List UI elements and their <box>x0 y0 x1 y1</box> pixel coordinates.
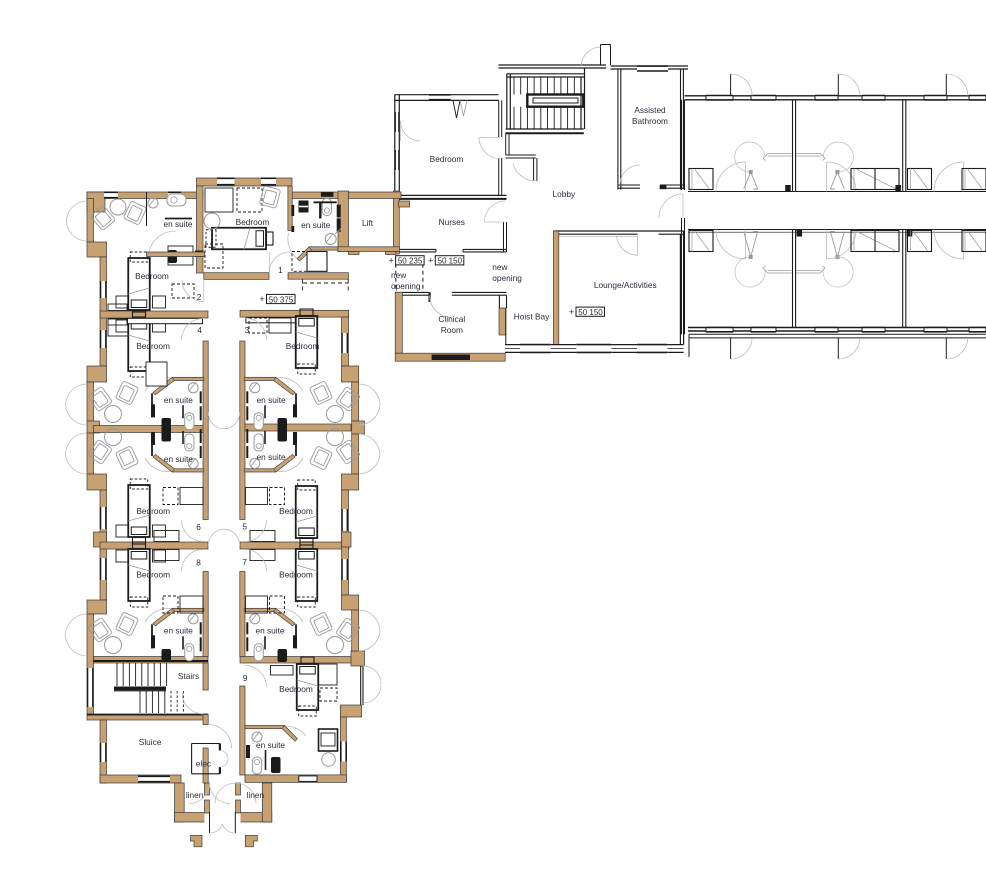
svg-text:2: 2 <box>197 292 202 302</box>
svg-text:Lift: Lift <box>362 218 374 228</box>
svg-text:Assisted: Assisted <box>634 105 666 115</box>
svg-text:en suite: en suite <box>255 626 284 636</box>
svg-text:50 235: 50 235 <box>398 257 423 266</box>
svg-text:en suite: en suite <box>257 395 286 405</box>
svg-text:linen: linen <box>186 790 204 800</box>
svg-text:en suite: en suite <box>301 220 330 230</box>
svg-text:elec: elec <box>196 759 211 769</box>
svg-text:7: 7 <box>242 557 247 567</box>
svg-text:en suite: en suite <box>164 395 193 405</box>
svg-text:opening: opening <box>391 281 421 291</box>
svg-text:new: new <box>492 262 508 272</box>
svg-text:Bedroom: Bedroom <box>135 271 169 281</box>
svg-text:1: 1 <box>278 265 283 275</box>
svg-text:50 150: 50 150 <box>438 257 463 266</box>
svg-text:Nurses: Nurses <box>439 217 465 227</box>
svg-text:+: + <box>428 256 433 266</box>
svg-text:+: + <box>569 307 574 317</box>
svg-text:6: 6 <box>196 522 201 532</box>
svg-text:Stairs: Stairs <box>178 671 199 681</box>
svg-text:Room: Room <box>441 325 463 335</box>
svg-text:Bedroom: Bedroom <box>430 154 464 164</box>
svg-text:5: 5 <box>242 522 247 532</box>
svg-text:+: + <box>388 256 393 266</box>
svg-text:9: 9 <box>243 673 248 683</box>
svg-text:Bedroom: Bedroom <box>136 341 170 351</box>
svg-text:50 375: 50 375 <box>269 295 294 304</box>
svg-text:en suite: en suite <box>164 626 193 636</box>
svg-text:50 150: 50 150 <box>578 308 603 317</box>
svg-text:Bedroom: Bedroom <box>279 506 313 516</box>
svg-text:Bedroom: Bedroom <box>236 217 270 227</box>
svg-text:new: new <box>391 270 407 280</box>
svg-text:en suite: en suite <box>163 219 192 229</box>
svg-text:en suite: en suite <box>257 452 286 462</box>
svg-text:en suite: en suite <box>256 740 285 750</box>
svg-text:Bathroom: Bathroom <box>632 116 668 126</box>
svg-text:linen: linen <box>247 790 265 800</box>
svg-text:3: 3 <box>245 325 250 335</box>
svg-text:Bedroom: Bedroom <box>279 570 313 580</box>
svg-text:Bedroom: Bedroom <box>136 506 170 516</box>
svg-text:8: 8 <box>196 558 201 568</box>
svg-text:Hoist Bay: Hoist Bay <box>514 312 550 322</box>
svg-text:en suite: en suite <box>164 454 193 464</box>
svg-text:Bedroom: Bedroom <box>286 341 320 351</box>
svg-text:Clinical: Clinical <box>438 314 465 324</box>
svg-text:Lobby: Lobby <box>552 189 575 199</box>
svg-text:+: + <box>259 294 264 304</box>
svg-text:Sluice: Sluice <box>139 737 162 747</box>
svg-text:Bedroom: Bedroom <box>136 570 170 580</box>
svg-text:4: 4 <box>197 325 202 335</box>
svg-text:opening: opening <box>492 273 522 283</box>
svg-text:Lounge/Activities: Lounge/Activities <box>594 280 657 290</box>
svg-text:Bedroom: Bedroom <box>279 684 313 694</box>
